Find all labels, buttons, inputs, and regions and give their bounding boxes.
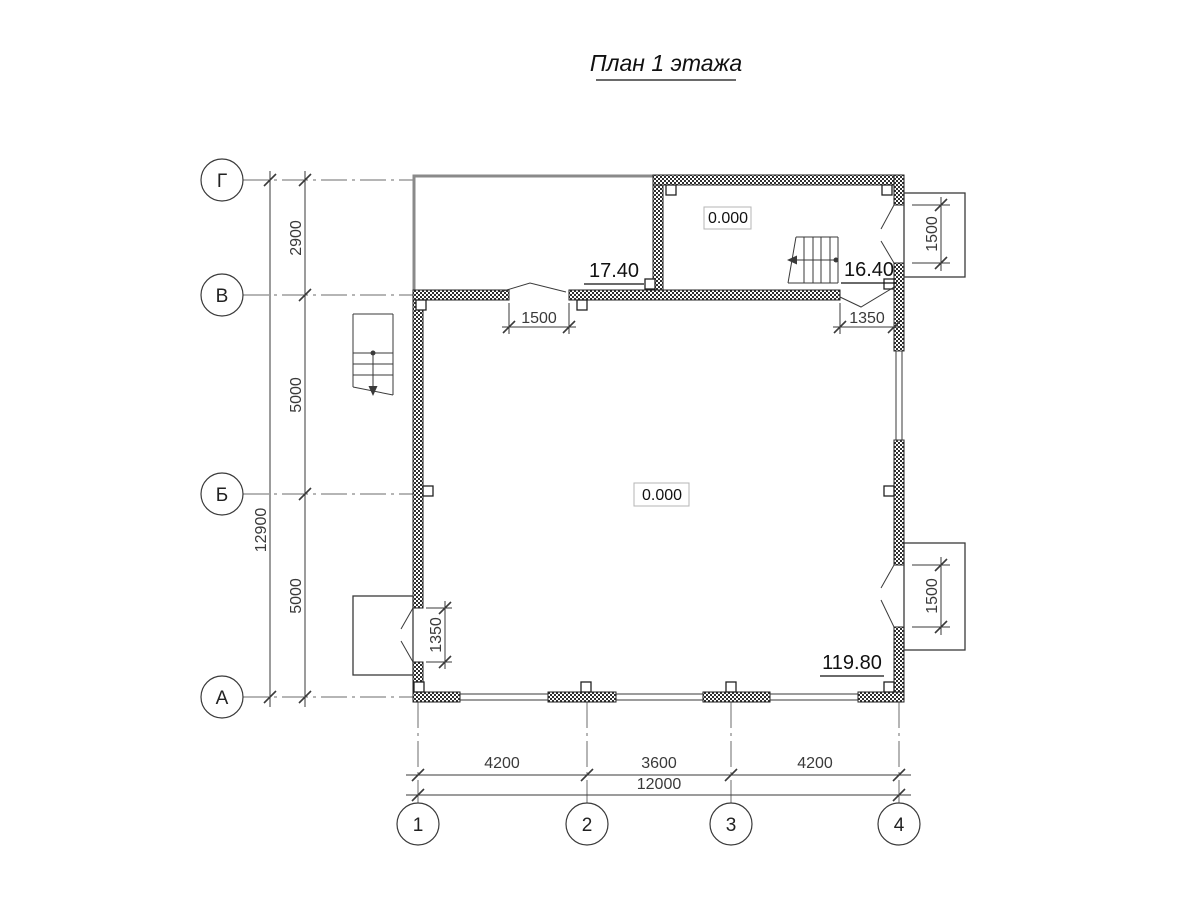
room-area-terrace-text: 17.40 [589, 260, 639, 282]
dim-porch-bottom-right-text: 1500 [924, 578, 941, 614]
plan-title: План 1 этажа [590, 50, 742, 80]
elevation-main: 0.000 [634, 483, 689, 506]
axis-label-col-1: 1 [413, 815, 424, 836]
dim-row-total-text: 12900 [253, 508, 270, 553]
axis-label-row-g: Г [217, 171, 227, 192]
porch-bottom-left [353, 596, 413, 675]
dim-col-seg-1: 4200 [484, 755, 520, 772]
axis-label-row-a: А [216, 688, 229, 709]
room-area-main: 119.80 [820, 652, 884, 676]
dim-row-seg-2: 5000 [288, 377, 305, 413]
col-axes: 1 2 3 4 [397, 702, 920, 845]
dim-door-left: 1350 [426, 601, 452, 669]
dim-row-seg-3: 5000 [288, 578, 305, 614]
dim-door-top-right-text: 1350 [849, 310, 885, 327]
dim-door-top-right: 1350 [833, 303, 901, 334]
dim-door-left-text: 1350 [428, 617, 445, 653]
axis-label-col-3: 3 [726, 815, 737, 836]
dim-col-seg-2: 3600 [641, 755, 677, 772]
dim-row-segments: 2900 5000 5000 [288, 171, 311, 707]
floor-plan-canvas: План 1 этажа Г В Б А 1 2 3 4 [0, 0, 1200, 900]
dim-porch-top-right-text: 1500 [924, 216, 941, 252]
room-area-hall-text: 16.40 [844, 259, 894, 281]
elevation-main-text: 0.000 [642, 487, 682, 504]
axis-label-col-4: 4 [894, 815, 905, 836]
dim-door-top-center: 1500 [502, 303, 576, 334]
dim-col-seg-3: 4200 [797, 755, 833, 772]
axis-label-row-v: В [216, 286, 229, 307]
stairs-exterior-arrow-icon [369, 386, 378, 396]
dim-porch-bottom-right: 1500 [912, 557, 950, 635]
dim-row-seg-1: 2900 [288, 220, 305, 256]
axis-label-row-b: Б [216, 485, 228, 506]
dim-col-total-text: 12000 [637, 776, 682, 793]
plan-title-text: План 1 этажа [590, 50, 742, 76]
row-axes: Г В Б А [201, 159, 413, 718]
windows [460, 351, 904, 700]
axis-label-col-2: 2 [582, 815, 593, 836]
stairs-interior [787, 237, 839, 283]
dim-row-total: 12900 [253, 171, 276, 707]
stairs-interior-arrow-icon [787, 256, 797, 265]
elevation-hall-text: 0.000 [708, 210, 748, 227]
dim-door-top-center-text: 1500 [521, 310, 557, 327]
room-area-main-text: 119.80 [822, 652, 882, 674]
drawing-sheet: План 1 этажа Г В Б А 1 2 3 4 [0, 0, 1200, 900]
elevation-hall: 0.000 [704, 207, 751, 229]
room-area-terrace: 17.40 [584, 260, 644, 284]
door-opening-leaders [401, 205, 896, 662]
stairs-exterior [353, 314, 393, 396]
dim-col-total: 12000 [406, 776, 911, 801]
dim-porch-top-right: 1500 [912, 197, 950, 271]
room-area-hall: 16.40 [841, 259, 897, 283]
